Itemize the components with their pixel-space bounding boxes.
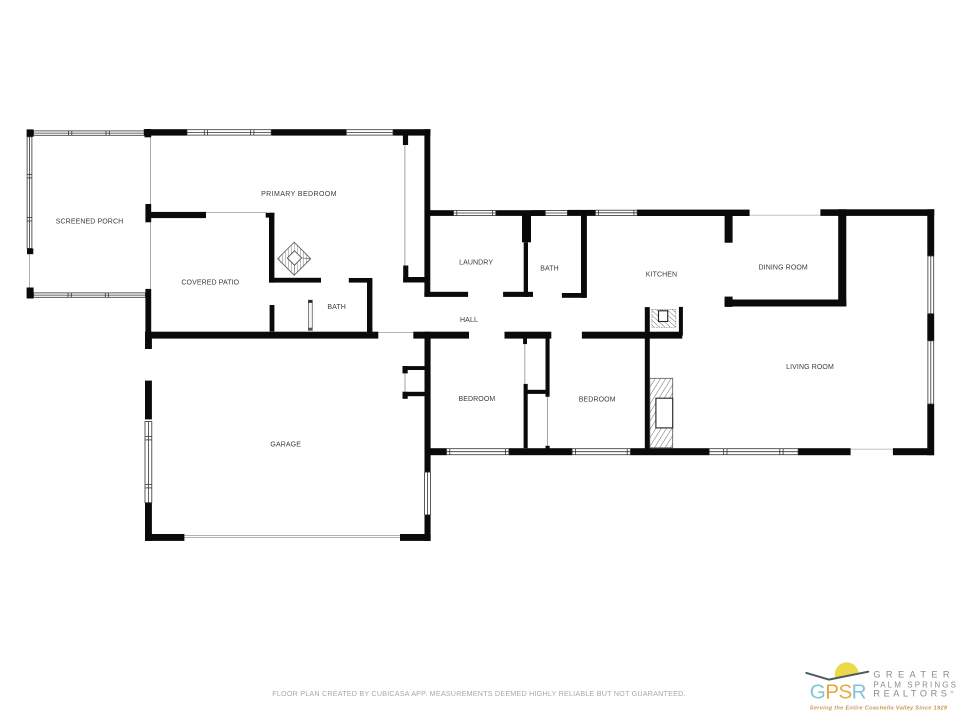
svg-text:BATH: BATH [540,265,559,272]
svg-text:LAUNDRY: LAUNDRY [459,259,493,266]
svg-text:GPSR: GPSR [810,681,866,704]
svg-text:SCREENED PORCH: SCREENED PORCH [56,218,124,225]
svg-text:REALTORS®: REALTORS® [873,689,957,699]
svg-text:BEDROOM: BEDROOM [579,396,616,403]
svg-text:BATH: BATH [327,304,346,311]
svg-text:COVERED PATIO: COVERED PATIO [181,279,239,286]
svg-text:HALL: HALL [460,317,478,324]
svg-text:LIVING ROOM: LIVING ROOM [786,364,834,371]
svg-text:Serving the Entire Coachella V: Serving the Entire Coachella Valley Sinc… [810,705,948,711]
svg-text:PRIMARY BEDROOM: PRIMARY BEDROOM [261,191,337,198]
svg-text:FLOOR PLAN CREATED BY CUBICASA: FLOOR PLAN CREATED BY CUBICASA APP. MEAS… [272,689,685,698]
svg-text:KITCHEN: KITCHEN [646,272,677,279]
svg-text:GREATER: GREATER [873,669,955,679]
svg-text:DINING ROOM: DINING ROOM [759,265,808,272]
svg-text:BEDROOM: BEDROOM [458,396,495,403]
svg-text:GARAGE: GARAGE [270,441,301,448]
